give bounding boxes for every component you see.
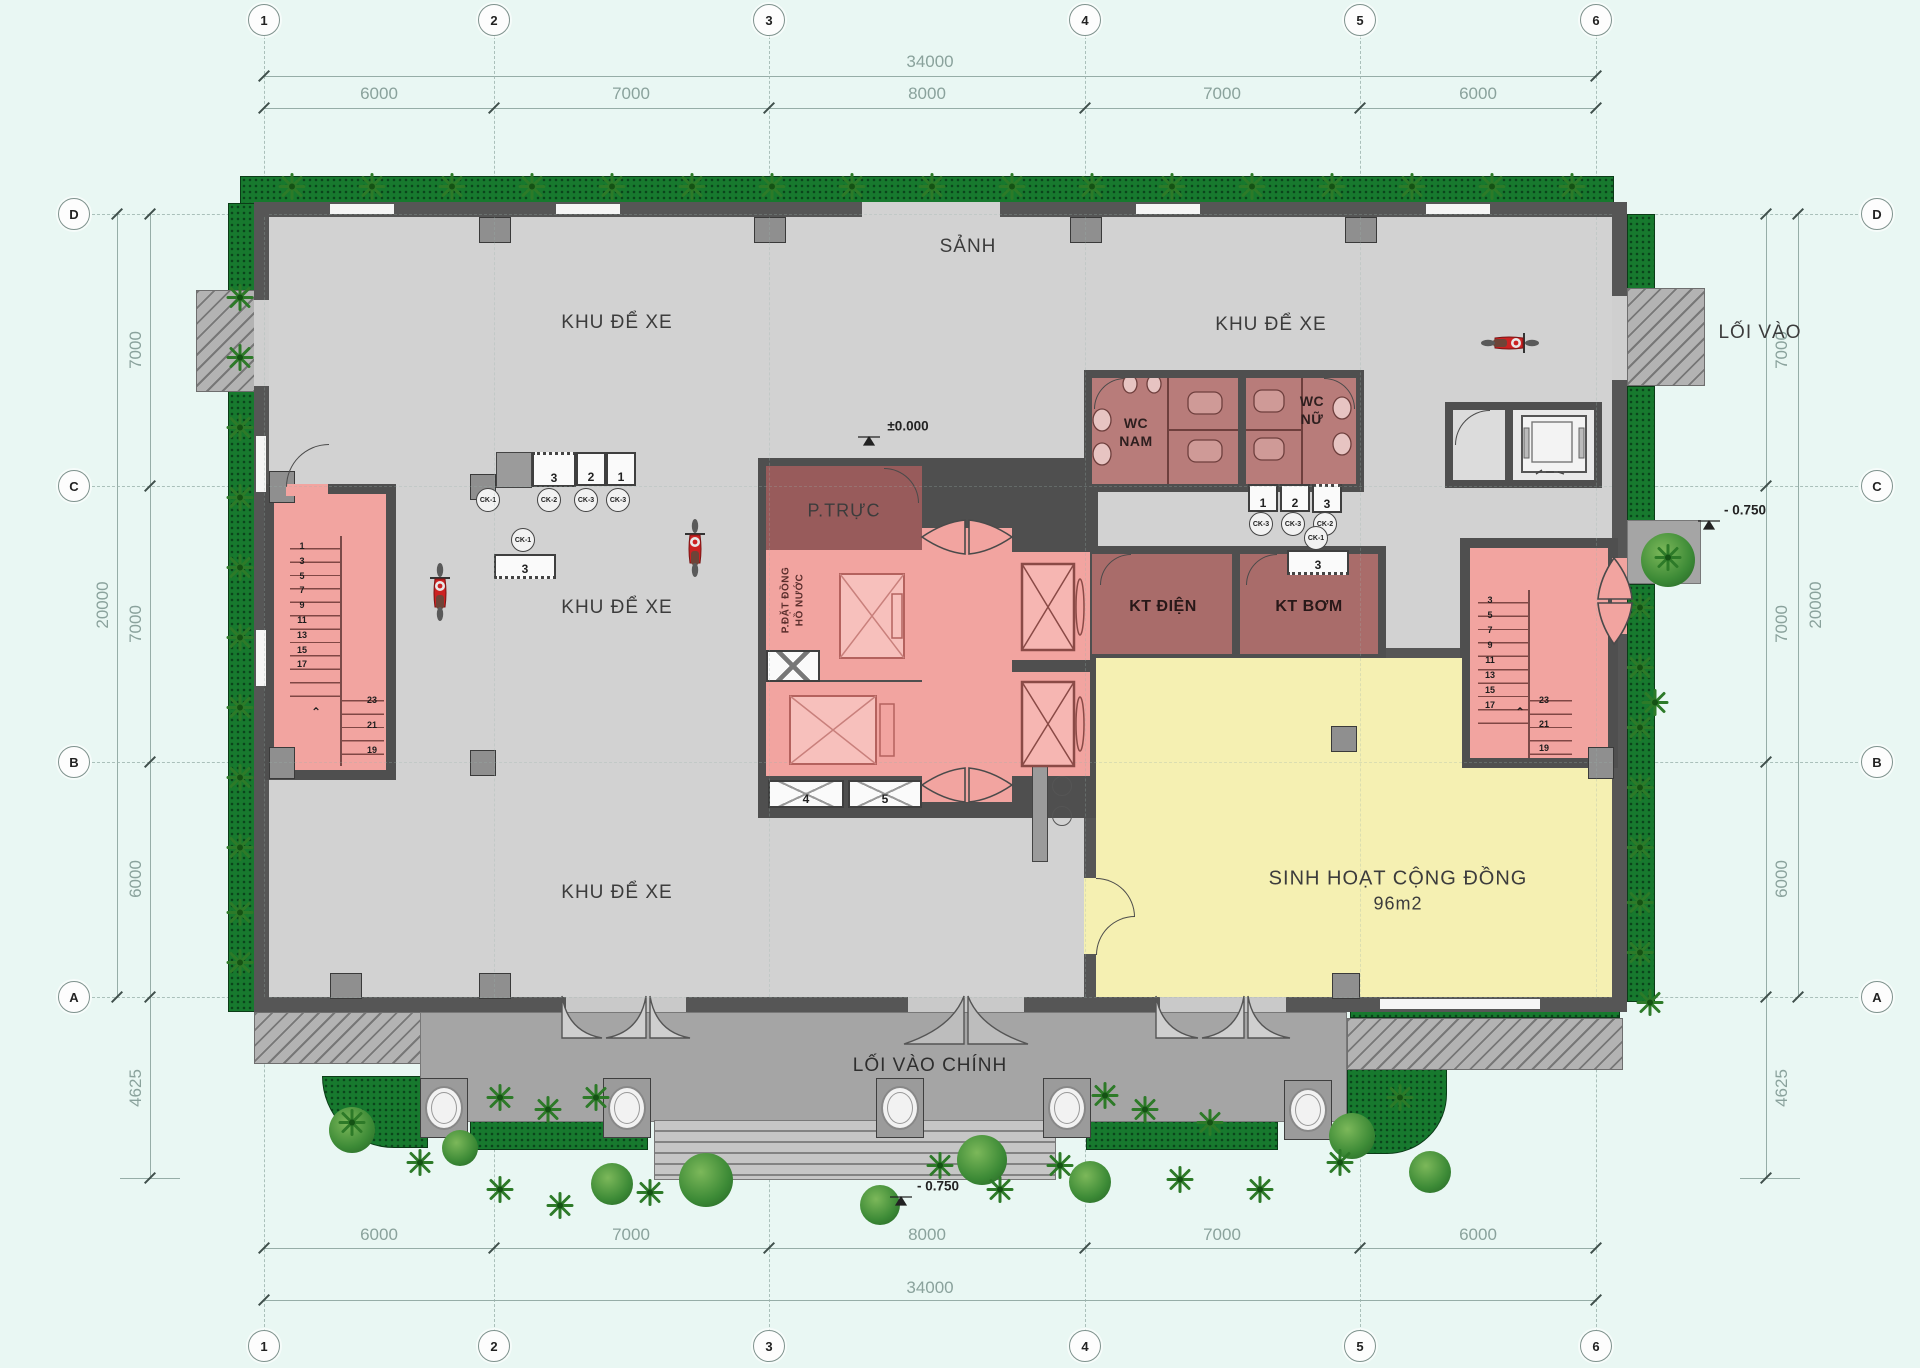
room-label-electrical: KT ĐIỆN	[1129, 598, 1197, 616]
bush-icon	[1069, 1161, 1111, 1203]
community-room	[1096, 658, 1462, 997]
room-label-water-meter: HỒ NƯỚC	[795, 574, 806, 627]
ck-marker: CK-3	[1281, 512, 1305, 536]
level-marker-icon	[890, 1196, 912, 1208]
dim-width-segment: 6000	[360, 1225, 398, 1245]
grid-bubble-col: 3	[753, 4, 785, 36]
passenger-lift-symbol	[1018, 560, 1086, 654]
grid-bubble-row: B	[1861, 746, 1893, 778]
palm-tree-icon	[337, 1108, 367, 1143]
stair-step-number: 17	[297, 659, 307, 669]
dimension-line	[264, 1248, 1596, 1249]
service-lift-symbol	[832, 566, 912, 666]
stair-step-number: 21	[367, 720, 377, 730]
passenger-lift-symbol	[1018, 678, 1086, 770]
stair-step-number: 9	[299, 600, 304, 610]
bush-icon	[591, 1163, 633, 1205]
wall-pilaster	[754, 217, 786, 243]
palm-tree-icon	[1090, 1081, 1120, 1116]
lift-pit-cell: 4	[768, 780, 844, 808]
stair-step-number: 21	[1539, 719, 1549, 729]
grid-bubble-row: C	[1861, 470, 1893, 502]
counter-end-block	[496, 452, 532, 488]
lift-lobby	[922, 528, 1012, 802]
dim-depth-segment: 7000	[126, 605, 146, 643]
dim-depth-segment: 6000	[1772, 860, 1792, 898]
stair-arrow: ⌃	[311, 705, 321, 719]
dim-depth-segment: 7000	[1772, 605, 1792, 643]
counter-cell: 1	[606, 452, 636, 486]
dim-depth-segment: 7000	[126, 331, 146, 369]
ck-marker: CK-3	[606, 488, 630, 512]
ck-marker: CK-2	[537, 488, 561, 512]
portico-column	[1043, 1078, 1091, 1138]
stair-divider	[340, 536, 342, 766]
wall-pilaster	[470, 750, 496, 776]
grid-line-horizontal	[269, 997, 1612, 998]
stair-step-number: 1	[299, 541, 304, 551]
dim-width-segment: 7000	[612, 84, 650, 104]
dimension-line	[264, 76, 1596, 77]
bush-icon	[442, 1130, 478, 1166]
grid-bubble-col: 1	[248, 4, 280, 36]
stair-left-treads-upper	[340, 688, 384, 766]
bush-icon	[1409, 1151, 1451, 1193]
wall-pilaster	[269, 747, 295, 779]
label-main-entrance: LỐI VÀO CHÍNH	[853, 1055, 1007, 1077]
dimension-line	[264, 1300, 1596, 1301]
wall-pilaster	[330, 973, 362, 999]
palm-tree-icon	[405, 1148, 435, 1183]
hedge-right	[1627, 386, 1655, 524]
dim-overall-depth-left: 20000	[93, 581, 113, 628]
ck-marker: CK-3	[574, 488, 598, 512]
room-label-water-meter: P.ĐẶT ĐỒNG	[781, 567, 792, 634]
palm-tree-icon	[485, 1175, 515, 1210]
bush-icon	[679, 1153, 733, 1207]
palm-tree-icon	[1625, 653, 1655, 688]
side-ramp-right	[1627, 288, 1705, 386]
level-marker-icon	[858, 436, 880, 448]
double-swing-door	[920, 766, 1014, 804]
grid-bubble-col: 1	[248, 1330, 280, 1362]
stair-right-treads-upper	[1528, 688, 1572, 758]
stair-step-number: 15	[297, 645, 307, 655]
double-swing-door	[1594, 556, 1634, 646]
wc-cell: 1	[1248, 484, 1278, 512]
stair-step-number: 3	[299, 556, 304, 566]
dim-depth-segment: 6000	[126, 860, 146, 898]
window-strip	[1136, 204, 1200, 214]
grid-bubble-col: 6	[1580, 1330, 1612, 1362]
room-label-parking: KHU ĐỂ XE	[1215, 314, 1326, 336]
palm-tree-icon	[225, 283, 255, 318]
sidewalk-left	[254, 1012, 422, 1064]
palm-tree-icon	[1653, 543, 1683, 578]
window-strip	[1426, 204, 1490, 214]
wall-pilaster	[479, 217, 511, 243]
grid-bubble-col: 2	[478, 4, 510, 36]
wall-pilaster	[1332, 973, 1360, 999]
grid-line-horizontal	[269, 762, 1612, 763]
palm-tree-icon	[1625, 938, 1655, 973]
stair-divider	[1528, 590, 1530, 758]
palm-tree-icon	[225, 898, 255, 933]
dim-width-segment: 6000	[1459, 1225, 1497, 1245]
sidewalk-right	[1347, 1018, 1623, 1070]
floor-plan-canvas: 3 2 1 3 3 1 2 3 4 5 SẢNH KHU ĐỂ XE KHU Đ…	[0, 0, 1920, 1368]
grid-bubble-col: 3	[753, 1330, 785, 1362]
palm-tree-icon	[1245, 1175, 1275, 1210]
stair-step-number: 3	[1487, 595, 1492, 605]
right-entrance-opening	[1612, 296, 1627, 380]
palm-tree-icon	[1045, 1151, 1075, 1186]
grid-bubble-row: B	[58, 746, 90, 778]
grid-bubble-row: A	[58, 981, 90, 1013]
water-meter-hatch	[766, 650, 820, 682]
palm-tree-icon	[1635, 988, 1665, 1023]
stair-step-number: 23	[367, 695, 377, 705]
palm-tree-icon	[1165, 1165, 1195, 1200]
palm-tree-icon	[225, 483, 255, 518]
palm-tree-icon	[1625, 773, 1655, 808]
room-label-community: SINH HOẠT CỘNG ĐỒNG	[1269, 868, 1528, 891]
dimension-line	[1740, 1178, 1800, 1179]
motorcycle-icon	[1481, 330, 1539, 356]
dimension-line	[1766, 214, 1767, 1178]
lift-symbol	[1516, 412, 1592, 478]
left-entrance-opening	[254, 300, 269, 386]
level-marker-icon	[1698, 520, 1720, 532]
hedge-right	[1627, 214, 1655, 294]
palm-tree-icon	[225, 833, 255, 868]
portico-column	[420, 1078, 468, 1138]
wall-pilaster	[1588, 747, 1614, 779]
room-label-pump: KT BƠM	[1275, 598, 1342, 616]
ck-marker: CK-3	[1249, 512, 1273, 536]
stool	[1052, 776, 1072, 796]
level-front: - 0.750	[917, 1179, 959, 1194]
palm-tree-icon	[985, 1175, 1015, 1210]
dim-width-segment: 6000	[1459, 84, 1497, 104]
grid-line-vertical	[494, 217, 495, 997]
stair-step-number: 23	[1539, 695, 1549, 705]
trough: 3	[494, 554, 556, 579]
wall-pilaster	[1070, 217, 1102, 243]
portico-column	[1284, 1080, 1332, 1140]
dimension-line	[117, 214, 118, 997]
dim-width-segment: 8000	[908, 84, 946, 104]
wc-cell: 3	[1312, 484, 1342, 513]
stair-step-number: 15	[1485, 685, 1495, 695]
room-label-wc-men: NAM	[1119, 433, 1152, 449]
grid-bubble-row: D	[58, 198, 90, 230]
dim-width-segment: 7000	[1203, 84, 1241, 104]
room-label-parking: KHU ĐỂ XE	[561, 597, 672, 619]
counter-cell: 3	[532, 452, 576, 487]
ck-marker: CK-1	[476, 488, 500, 512]
stair-step-number: 13	[1485, 670, 1495, 680]
stair-step-number: 5	[1487, 610, 1492, 620]
dim-front-apron-left: 4625	[126, 1069, 146, 1107]
stair-step-number: 7	[1487, 625, 1492, 635]
palm-tree-icon	[1640, 688, 1670, 723]
ck-marker: CK-1	[511, 528, 535, 552]
room-label-hall: SẢNH	[940, 236, 997, 258]
grid-bubble-col: 6	[1580, 4, 1612, 36]
palm-tree-icon	[1625, 833, 1655, 868]
window-strip	[556, 204, 620, 214]
grid-bubble-row: D	[1861, 198, 1893, 230]
palm-tree-icon	[225, 623, 255, 658]
level-side-exit: - 0.750	[1724, 503, 1766, 518]
wall-pilaster	[1345, 217, 1377, 243]
palm-tree-icon	[533, 1095, 563, 1130]
room-label-parking: KHU ĐỂ XE	[561, 882, 672, 904]
grid-bubble-row: A	[1861, 981, 1893, 1013]
room-label-wc-women: NỮ	[1301, 411, 1324, 427]
stair-step-number: 11	[297, 615, 307, 625]
wall-pilaster	[479, 973, 511, 999]
wall-pilaster	[1331, 726, 1357, 752]
palm-tree-icon	[635, 1178, 665, 1213]
grid-line-horizontal	[269, 486, 1612, 487]
grid-bubble-col: 2	[478, 1330, 510, 1362]
ck-marker: CK-1	[1304, 526, 1328, 550]
wc-cell: 2	[1280, 484, 1310, 512]
water-meter-room	[766, 550, 820, 650]
grid-line-vertical	[769, 217, 770, 997]
palm-tree-icon	[1385, 1083, 1415, 1118]
palm-tree-icon	[225, 763, 255, 798]
grid-line-horizontal	[269, 214, 1612, 215]
label-side-entrance: LỐI VÀO	[1718, 322, 1801, 344]
dimension-line	[264, 108, 1596, 109]
trough: 3	[1287, 550, 1349, 575]
grid-bubble-col: 5	[1344, 1330, 1376, 1362]
palm-tree-icon	[225, 413, 255, 448]
stair-step-number: 9	[1487, 640, 1492, 650]
portico-column	[876, 1078, 924, 1138]
counter-cell: 2	[576, 452, 606, 486]
dim-front-apron-right: 4625	[1772, 1069, 1792, 1107]
stool	[1052, 806, 1072, 826]
motorcycle-icon	[682, 519, 708, 577]
motorcycle-icon	[427, 563, 453, 621]
room-label-wc-men: WC	[1124, 415, 1148, 431]
dim-overall-depth-right: 20000	[1806, 581, 1826, 628]
stair-step-number: 19	[367, 745, 377, 755]
room-label-wc-women: WC	[1300, 393, 1324, 409]
entrance-curtain-doors	[902, 994, 1030, 1046]
grid-bubble-row: C	[58, 470, 90, 502]
palm-tree-icon	[1625, 888, 1655, 923]
grid-line-vertical	[264, 217, 265, 997]
service-lift-symbol	[782, 690, 906, 770]
grid-bubble-col: 4	[1069, 4, 1101, 36]
palm-tree-icon	[225, 343, 255, 378]
dim-width-segment: 7000	[1203, 1225, 1241, 1245]
palm-tree-icon	[1325, 1148, 1355, 1183]
room-label-duty: P.TRỰC	[807, 501, 880, 522]
stair-step-number: 17	[1485, 700, 1495, 710]
grid-bubble-col: 5	[1344, 4, 1376, 36]
dim-width-segment: 7000	[612, 1225, 650, 1245]
room-label-community-area: 96m2	[1373, 894, 1422, 915]
entrance-curtain-doors	[1154, 994, 1292, 1040]
palm-tree-icon	[225, 948, 255, 983]
palm-tree-icon	[581, 1083, 611, 1118]
level-ground: ±0.000	[887, 419, 928, 434]
dim-width-segment: 8000	[908, 1225, 946, 1245]
palm-tree-icon	[225, 553, 255, 588]
stair-arrow: ⌃	[1515, 705, 1525, 719]
window-strip	[1380, 999, 1540, 1009]
double-swing-door	[920, 518, 1014, 556]
dim-overall-width-top: 34000	[906, 52, 953, 72]
dimension-line	[150, 214, 151, 1178]
grid-bubble-col: 4	[1069, 1330, 1101, 1362]
stair-step-number: 19	[1539, 743, 1549, 753]
room-label-parking: KHU ĐỂ XE	[561, 312, 672, 334]
palm-tree-icon	[545, 1191, 575, 1226]
dim-overall-width-bottom: 34000	[906, 1278, 953, 1298]
stair-step-number: 11	[1485, 655, 1495, 665]
palm-tree-icon	[225, 693, 255, 728]
reception-desk	[1032, 762, 1048, 862]
palm-tree-icon	[1130, 1095, 1160, 1130]
palm-tree-icon	[1195, 1108, 1225, 1143]
entrance-curtain-doors	[560, 994, 692, 1040]
dim-width-segment: 6000	[360, 84, 398, 104]
window-strip	[330, 204, 394, 214]
stair-step-number: 13	[297, 630, 307, 640]
stair-step-number: 5	[299, 571, 304, 581]
palm-tree-icon	[485, 1083, 515, 1118]
lift-pit-cell: 5	[848, 780, 922, 808]
stair-step-number: 7	[299, 585, 304, 595]
planter	[1086, 1118, 1278, 1150]
